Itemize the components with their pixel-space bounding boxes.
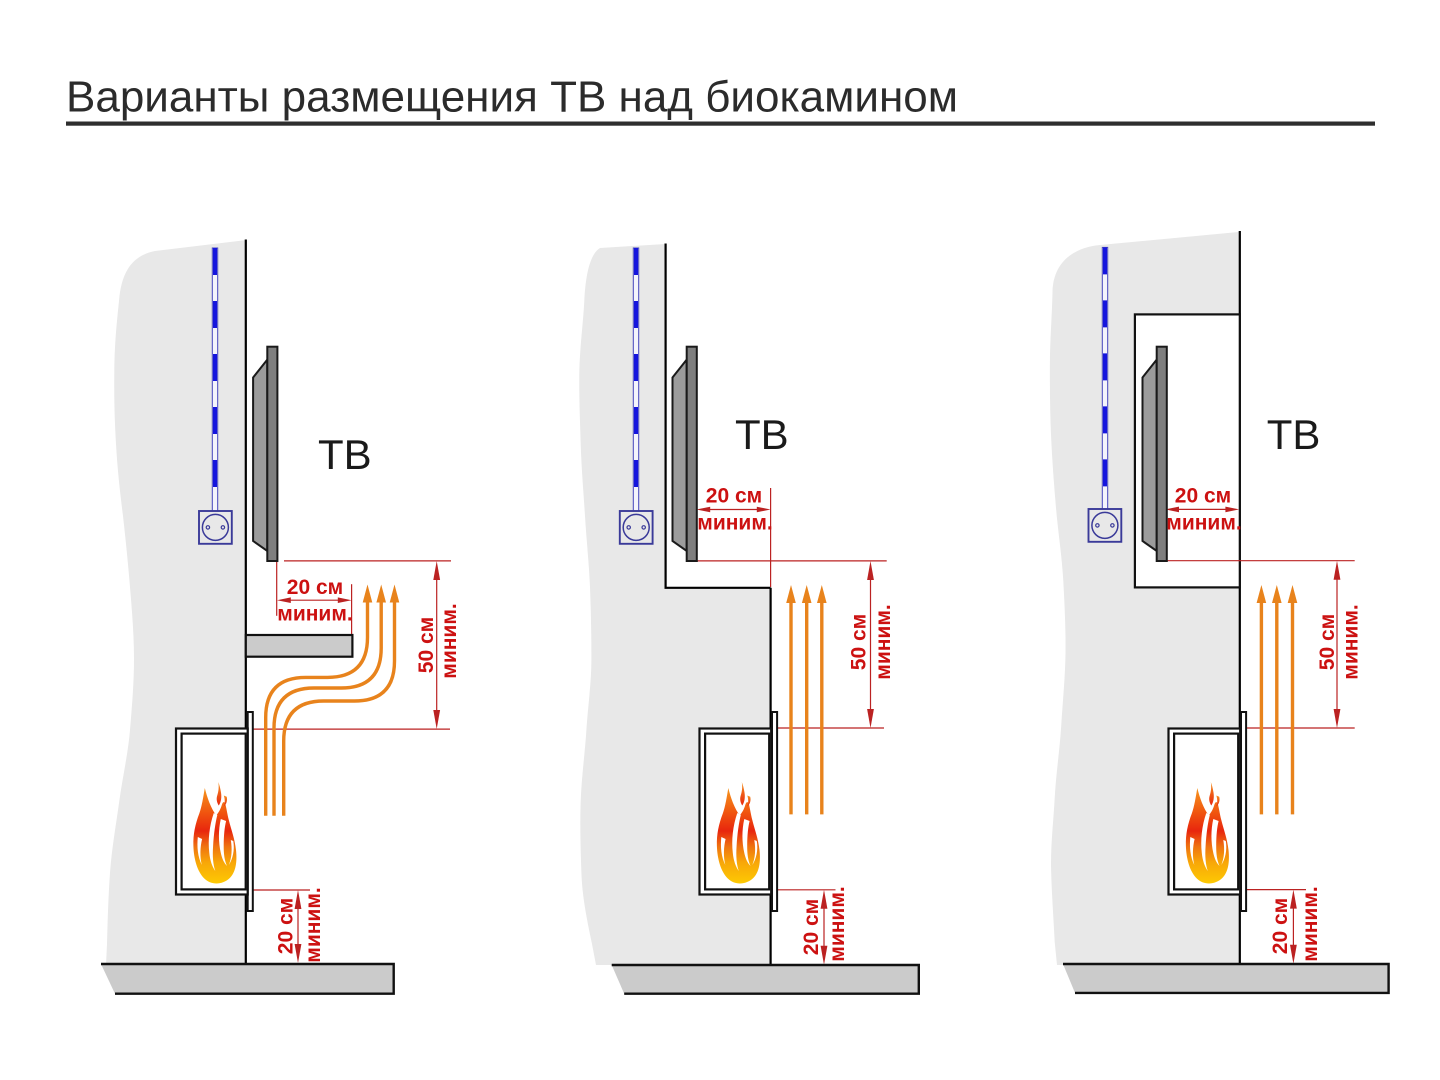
svg-text:20 см: 20 см: [800, 899, 823, 955]
svg-text:миним.: миним.: [697, 512, 772, 535]
svg-text:50 см: 50 см: [415, 617, 438, 673]
svg-text:20 см: 20 см: [275, 898, 298, 954]
svg-text:миним.: миним.: [1340, 604, 1363, 679]
svg-text:миним.: миним.: [1299, 886, 1322, 961]
svg-text:20 см: 20 см: [1269, 898, 1292, 954]
svg-text:ТВ: ТВ: [1267, 411, 1321, 458]
svg-text:ТВ: ТВ: [318, 431, 372, 478]
svg-text:миним.: миним.: [826, 886, 849, 961]
svg-text:20 см: 20 см: [706, 485, 762, 508]
svg-text:50 см: 50 см: [1316, 614, 1339, 670]
svg-text:20 см: 20 см: [287, 576, 343, 599]
svg-text:миним.: миним.: [302, 887, 325, 962]
svg-text:миним.: миним.: [438, 603, 461, 678]
svg-text:миним.: миним.: [1166, 512, 1241, 535]
svg-text:50 см: 50 см: [848, 614, 871, 670]
svg-text:миним.: миним.: [277, 603, 352, 626]
svg-text:ТВ: ТВ: [735, 411, 789, 458]
svg-text:20 см: 20 см: [1175, 485, 1231, 508]
svg-text:Варианты размещения ТВ над био: Варианты размещения ТВ над биокамином: [66, 73, 958, 122]
svg-text:миним.: миним.: [872, 604, 895, 679]
